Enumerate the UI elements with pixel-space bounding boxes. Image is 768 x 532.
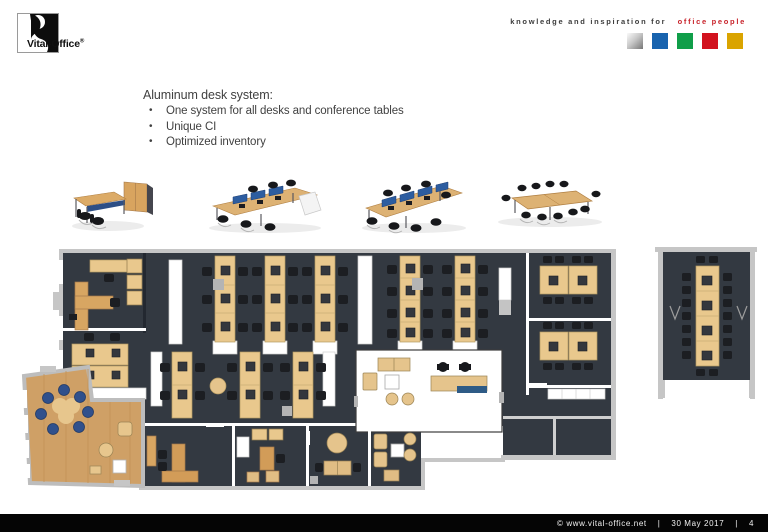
slide-heading: Aluminum desk system:	[143, 88, 404, 102]
bullet-item: Optimized inventory	[143, 136, 404, 148]
footer-copyright: © www.vital-office.net	[557, 519, 647, 528]
bench-desk-4-icon	[203, 170, 331, 236]
footer-separator: |	[735, 519, 738, 528]
slide: { "logo": { "brand": "Vital-Office", "re…	[0, 0, 768, 532]
green-square	[677, 33, 693, 49]
footer-separator: |	[658, 519, 661, 528]
footer-bar: © www.vital-office.net | 30 May 2017 | 4	[0, 514, 768, 532]
footer-page-number: 4	[749, 519, 754, 528]
bullet-item: Unique CI	[143, 121, 404, 133]
bullet-list: One system for all desks and conference …	[143, 105, 404, 148]
reception-counter-blue	[457, 386, 487, 393]
registered-mark: ®	[80, 39, 84, 45]
executive-desk-icon	[68, 172, 156, 234]
tagline-black-text: knowledge and inspiration for	[510, 17, 666, 26]
windows-and-doors	[53, 260, 63, 374]
yellow-square	[727, 33, 743, 49]
brand-name: Vital-Office®	[27, 38, 84, 50]
tagline-red-text: office people	[678, 17, 746, 26]
vital-office-logo: Vital-Office®	[17, 13, 137, 57]
conference-room-plan	[655, 247, 757, 399]
bench-desk-mid-row	[151, 352, 335, 418]
conference-table-icon	[492, 174, 612, 232]
bullet-item: One system for all desks and conference …	[143, 105, 404, 117]
tagline: knowledge and inspiration for office peo…	[510, 17, 746, 26]
reception-room	[354, 350, 504, 432]
footer-date: 30 May 2017	[671, 519, 724, 528]
red-square	[702, 33, 718, 49]
blue-square	[652, 33, 668, 49]
bench-desk-8-icon	[358, 170, 470, 236]
brand-color-squares	[627, 33, 743, 49]
office-floor-plan	[10, 240, 760, 502]
slide-copy: Aluminum desk system: One system for all…	[143, 88, 404, 152]
silver-square	[627, 33, 643, 49]
